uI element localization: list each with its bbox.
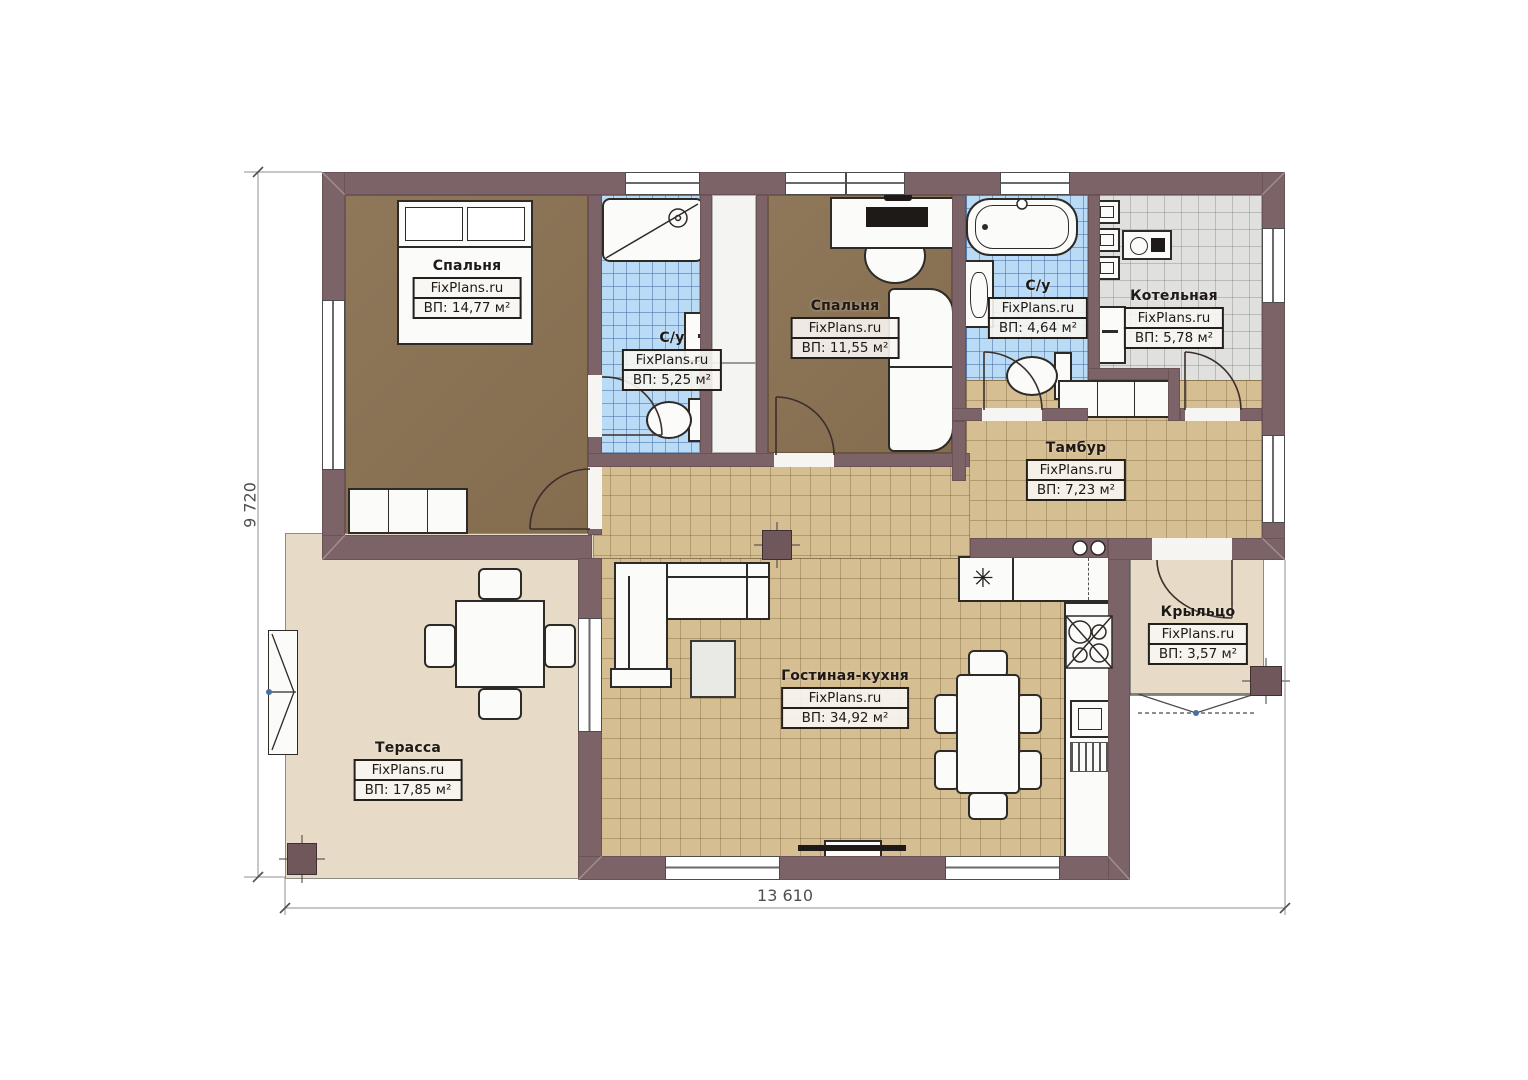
boiler-console (1122, 230, 1172, 260)
terrace-table (455, 600, 545, 688)
oven (1070, 700, 1110, 738)
room-label-porch: Крыльцо FixPlans.ru ВП: 3,57 м² (1148, 604, 1248, 665)
terrace-chair (478, 568, 522, 600)
daybed-seam (890, 366, 952, 368)
room-area: ВП: 4,64 м² (988, 317, 1088, 339)
room-area: ВП: 5,78 м² (1124, 327, 1224, 349)
room-label-bathroom-2: С/у FixPlans.ru ВП: 4,64 м² (988, 278, 1088, 339)
wall-kitchen-top (970, 538, 1108, 558)
column-living (762, 530, 792, 560)
bathtub-inner (975, 205, 1069, 249)
window-top-bathroom2 (1000, 172, 1070, 195)
room-label-bedroom-1: Спальня FixPlans.ru ВП: 14,77 м² (413, 258, 522, 319)
room-area: ВП: 7,23 м² (1026, 479, 1126, 501)
room-name: С/у (988, 278, 1088, 294)
wall-boiler-bottom-left (1088, 368, 1180, 380)
door-opening-entrance (1152, 538, 1232, 560)
room-name: Гостиная-кухня (781, 668, 909, 684)
room-area: ВП: 3,57 м² (1148, 643, 1248, 665)
washer-slot (1102, 330, 1118, 333)
terrace-door-opening (578, 618, 602, 732)
window-bottom-living-2 (945, 856, 1060, 880)
room-area: ВП: 34,92 м² (781, 707, 909, 729)
bathtub-drain (982, 224, 988, 230)
wall-bathroom1-east (700, 195, 712, 457)
wall-boiler-stub (1168, 368, 1180, 421)
room-label-vestibule: Тамбур FixPlans.ru ВП: 7,23 м² (1026, 440, 1126, 501)
door-opening-boiler (1185, 408, 1240, 421)
terrace-chair (424, 624, 456, 668)
sofa-vertical (614, 562, 668, 672)
room-label-bathroom-1: С/у FixPlans.ru ВП: 5,25 м² (622, 330, 722, 391)
floor-closet-niche (712, 195, 756, 453)
brand-watermark: FixPlans.ru (1026, 459, 1126, 481)
room-name: Терасса (354, 740, 463, 756)
window-left-bedroom1 (322, 300, 345, 470)
washing-machine (1096, 306, 1126, 364)
brand-watermark: FixPlans.ru (413, 277, 522, 299)
wall-bedroom1-terrace (322, 535, 592, 560)
brand-watermark: FixPlans.ru (988, 297, 1088, 319)
terrace-chair (478, 688, 522, 720)
fridge-icon: ✳ (972, 566, 994, 592)
bathtub (966, 198, 1078, 256)
room-name: Крыльцо (1148, 604, 1248, 620)
dining-table (956, 674, 1020, 794)
toilet-bowl (646, 401, 692, 439)
pillow (405, 207, 463, 241)
computer-icon (866, 207, 928, 227)
porch-steps (1130, 694, 1262, 716)
brand-watermark: FixPlans.ru (354, 759, 463, 781)
brand-watermark: FixPlans.ru (622, 349, 722, 371)
terrace-stairs (268, 630, 298, 755)
room-label-bedroom-2: Спальня FixPlans.ru ВП: 11,55 м² (791, 298, 900, 359)
room-name: Котельная (1124, 288, 1224, 304)
coffee-table (690, 640, 736, 698)
pillow (467, 207, 525, 241)
brand-watermark: FixPlans.ru (1148, 623, 1248, 645)
counter-divider-dashed (1088, 558, 1089, 600)
door-opening-bathroom2 (982, 408, 1042, 421)
floor-terrace (285, 533, 594, 879)
door-opening-bedroom1-bath (588, 375, 602, 437)
gauge-icon (1130, 237, 1148, 255)
wall-bathroom2-east (1088, 195, 1100, 380)
room-name: Тамбур (1026, 440, 1126, 456)
brand-watermark: FixPlans.ru (1124, 307, 1224, 329)
wall-vestibule-west (952, 421, 966, 481)
room-area: ВП: 11,55 м² (791, 337, 900, 359)
door-opening-bedroom2 (774, 453, 834, 467)
wall-bedroom2-west (756, 195, 768, 457)
room-area: ВП: 14,77 м² (413, 297, 522, 319)
wall-living-right (1108, 558, 1130, 880)
door-opening-bedroom1-hall (588, 467, 602, 529)
room-name: Спальня (791, 298, 900, 314)
window-right-boiler (1262, 228, 1285, 303)
panel-icon (1151, 238, 1165, 252)
room-name: С/у (622, 330, 722, 346)
dimension-height: 9 720 (241, 482, 260, 528)
room-label-living-kitchen: Гостиная-кухня FixPlans.ru ВП: 34,92 м² (781, 668, 909, 729)
window-top-bedroom2 (785, 172, 905, 195)
toilet-bowl-2 (1006, 356, 1058, 396)
brand-watermark: FixPlans.ru (791, 317, 900, 339)
room-area: ВП: 17,85 м² (354, 779, 463, 801)
floor-plan-canvas: ✳ (0, 0, 1528, 1080)
dining-chair (968, 792, 1008, 820)
terrace-chair (544, 624, 576, 668)
room-name: Спальня (413, 258, 522, 274)
window-top-bathroom1 (625, 172, 700, 195)
column-porch (1250, 666, 1282, 696)
shower-tray (602, 198, 704, 262)
brand-watermark: FixPlans.ru (781, 687, 909, 709)
blanket-edge (399, 246, 531, 248)
column-terrace (287, 843, 317, 875)
sofa-armrest (610, 668, 672, 688)
wall-bedroom2-east (952, 195, 966, 421)
room-area: ВП: 5,25 м² (622, 369, 722, 391)
dimension-width: 13 610 (757, 886, 813, 905)
desk (830, 197, 956, 249)
window-bottom-living-1 (665, 856, 780, 880)
room-label-terrace: Терасса FixPlans.ru ВП: 17,85 м² (354, 740, 463, 801)
room-label-boiler-room: Котельная FixPlans.ru ВП: 5,78 м² (1124, 288, 1224, 349)
wardrobe-bedroom-1 (348, 488, 468, 534)
washbasin-bowl (970, 272, 988, 318)
vent-grille (1070, 742, 1110, 772)
window-right-vestibule (1262, 435, 1285, 523)
